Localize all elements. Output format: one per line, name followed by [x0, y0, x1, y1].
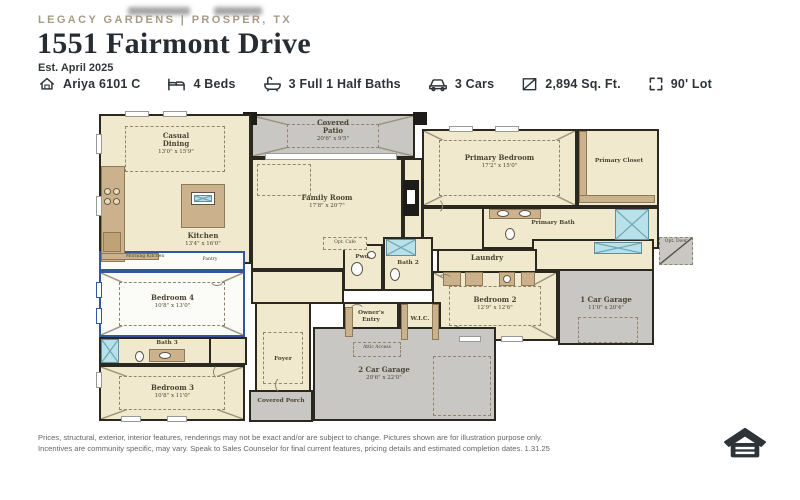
door-arc — [437, 274, 453, 290]
toilet — [135, 351, 144, 362]
page-title: 1551 Fairmont Drive — [37, 27, 311, 61]
label-primary-closet: Primary Closet — [593, 158, 645, 165]
window — [96, 308, 102, 324]
spec-baths: 3 Full 1 Half Baths — [263, 76, 401, 92]
spec-beds: 4 Beds — [167, 77, 235, 92]
door-arc — [209, 270, 225, 286]
spec-cars: 3 Cars — [428, 77, 494, 92]
window — [96, 372, 102, 388]
label-opt-door: Opt. Door — [659, 239, 693, 244]
car-icon — [428, 77, 448, 92]
lot-icon — [648, 76, 664, 92]
window — [96, 134, 102, 154]
dryer — [465, 272, 483, 286]
spec-plan: Ariya 6101 C — [38, 76, 140, 92]
label-primary-bath: Primary Bath — [525, 220, 581, 227]
spec-baths-label: 3 Full 1 Half Baths — [289, 77, 401, 91]
cooktop-burner — [113, 188, 120, 195]
garage2-option-box — [433, 356, 491, 416]
door-arc — [275, 376, 293, 394]
patio-post — [413, 112, 427, 125]
vanity-sink — [159, 352, 171, 359]
window — [121, 416, 141, 422]
primary-shower — [615, 209, 649, 240]
label-bedroom3: Bedroom 310'8" x 11'0" — [125, 384, 220, 400]
label-family-room: Family Room17'8" x 20'7" — [282, 194, 372, 210]
window — [125, 111, 149, 117]
house-icon — [38, 76, 56, 92]
cooktop-burner — [104, 198, 111, 205]
label-casual-dining: Casual Dining13'0" x 15'9" — [155, 132, 197, 156]
est-date: Est. April 2025 — [38, 62, 311, 74]
spec-sqft: 2,894 Sq. Ft. — [521, 76, 621, 92]
label-pantry: Pantry — [193, 257, 227, 262]
fireplace-opening — [407, 190, 415, 204]
community-label: LEGACY GARDENS | PROSPER, TX — [38, 14, 311, 26]
window — [501, 336, 523, 342]
island-sink-basin — [194, 195, 212, 202]
label-bedroom4: Bedroom 410'8" x 13'0" — [125, 294, 220, 310]
disclaimer-line2: Incentives are community specific, may v… — [38, 444, 698, 455]
bath-icon — [263, 76, 282, 92]
disclaimer: Prices, structural, exterior, interior f… — [38, 433, 698, 454]
vanity-sink — [497, 210, 509, 217]
specs-row: Ariya 6101 C 4 Beds 3 Full 1 Half Baths … — [38, 76, 712, 92]
label-bath2: Bath 2 — [393, 260, 423, 267]
window — [167, 416, 187, 422]
window — [96, 196, 102, 216]
spec-plan-label: Ariya 6101 C — [63, 77, 140, 91]
label-powder: Pwd. — [345, 254, 381, 261]
room-powder — [343, 244, 383, 291]
wall-oven — [103, 232, 121, 252]
window — [163, 111, 187, 117]
label-laundry: Laundry — [449, 254, 525, 262]
label-wic: W.I.C. — [405, 316, 435, 323]
vanity-sink — [519, 210, 531, 217]
door-arc — [427, 198, 443, 214]
spec-lot: 90' Lot — [648, 76, 712, 92]
bed-icon — [167, 77, 186, 92]
window — [96, 282, 102, 298]
label-owners-entry: Owner's Entry — [349, 310, 393, 323]
family-option-box — [257, 164, 311, 196]
cooktop-burner — [113, 198, 120, 205]
label-attic-access: Attic Access — [355, 345, 399, 350]
label-garage2: 2 Car Garage20'6" x 22'0" — [339, 366, 429, 382]
refrigerator — [521, 272, 535, 286]
patio-sliding-door — [265, 153, 397, 160]
label-morning-kitchen: Morning Kitchen — [121, 254, 169, 259]
header: LEGACY GARDENS | PROSPER, TX 1551 Fairmo… — [38, 14, 311, 74]
window — [459, 336, 481, 342]
cooktop-burner — [104, 188, 111, 195]
disclaimer-line1: Prices, structural, exterior, interior f… — [38, 433, 698, 444]
label-foyer: Foyer — [259, 356, 307, 363]
floor-plan: Casual Dining13'0" x 15'9" Covered Patio… — [97, 104, 697, 430]
window — [495, 126, 519, 132]
window — [449, 126, 473, 132]
closet-shelving — [579, 131, 587, 203]
bath2-shower — [386, 239, 416, 256]
label-opt-cafe: Opt. Cafe — [325, 240, 365, 245]
label-bath3: Bath 3 — [151, 340, 183, 347]
label-covered-porch: Covered Porch — [255, 398, 307, 405]
bath3-tub — [101, 339, 119, 363]
label-primary-bedroom: Primary Bedroom17'2" x 15'0" — [452, 154, 547, 170]
label-bedroom2: Bedroom 212'9" x 12'6" — [449, 296, 541, 312]
door-arc — [213, 364, 229, 380]
spec-beds-label: 4 Beds — [193, 77, 235, 91]
spec-cars-label: 3 Cars — [455, 77, 494, 91]
hall-center — [251, 270, 344, 304]
flyer-page: LEGACY GARDENS | PROSPER, TX 1551 Fairmo… — [0, 0, 800, 500]
area-icon — [521, 76, 538, 92]
kitchen-island — [181, 184, 225, 228]
laundry-sink — [503, 275, 511, 283]
room-covered-porch — [249, 390, 313, 422]
label-covered-patio: Covered Patio20'6" x 9'5" — [315, 119, 351, 143]
toilet — [351, 262, 363, 276]
builder-logo-icon — [722, 424, 768, 469]
garage1-door-box — [578, 317, 638, 343]
label-kitchen: Kitchen13'4" x 16'0" — [153, 232, 253, 248]
spec-sqft-label: 2,894 Sq. Ft. — [545, 77, 621, 91]
label-garage1: 1 Car Garage11'0" x 20'4" — [565, 296, 647, 312]
toilet — [505, 228, 515, 240]
hall-closet — [209, 337, 247, 365]
spec-lot-label: 90' Lot — [671, 77, 712, 91]
closet-shelving — [579, 195, 655, 203]
mud-bench-tile — [594, 242, 642, 254]
toilet — [390, 268, 400, 281]
